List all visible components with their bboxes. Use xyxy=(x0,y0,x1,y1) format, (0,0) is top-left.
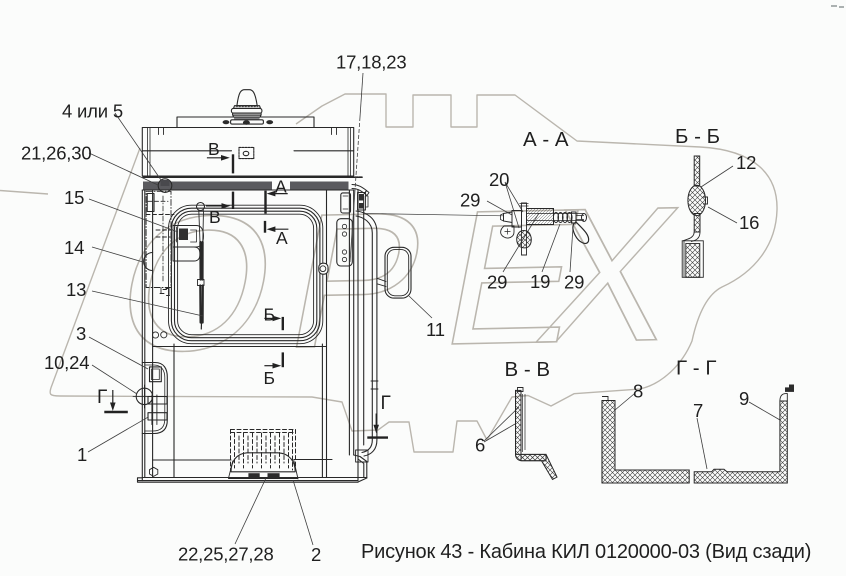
svg-text:19: 19 xyxy=(530,271,550,292)
svg-text:Г: Г xyxy=(381,393,391,414)
svg-text:4 или 5: 4 или 5 xyxy=(62,101,123,122)
svg-text:6: 6 xyxy=(475,435,485,456)
svg-text:Б: Б xyxy=(264,305,275,325)
svg-text:А - А: А - А xyxy=(523,128,569,151)
svg-text:ОРЕХ: ОРЕХ xyxy=(102,167,693,393)
svg-text:Г: Г xyxy=(97,387,107,408)
svg-text:2: 2 xyxy=(311,544,321,565)
svg-text:29: 29 xyxy=(564,272,584,293)
svg-text:10,24: 10,24 xyxy=(44,352,89,373)
svg-text:9: 9 xyxy=(739,388,749,409)
svg-text:22,25,27,28: 22,25,27,28 xyxy=(178,544,274,565)
svg-text:Рисунок 43 - Кабина КИЛ 012000: Рисунок 43 - Кабина КИЛ 0120000-03 (Вид … xyxy=(361,541,811,563)
svg-text:16: 16 xyxy=(739,212,759,233)
svg-text:14: 14 xyxy=(64,237,84,258)
svg-text:7: 7 xyxy=(693,400,703,421)
svg-text:Б - Б: Б - Б xyxy=(675,125,720,148)
svg-text:29: 29 xyxy=(487,272,507,293)
svg-text:29: 29 xyxy=(460,190,480,211)
svg-text:21,26,30: 21,26,30 xyxy=(21,143,91,164)
svg-text:А: А xyxy=(276,228,288,248)
svg-text:В: В xyxy=(209,207,221,227)
svg-text:1: 1 xyxy=(77,444,87,465)
svg-text:Г - Г: Г - Г xyxy=(676,357,716,380)
svg-text:17,18,23: 17,18,23 xyxy=(336,52,406,73)
svg-text:20: 20 xyxy=(489,169,509,190)
svg-text:11: 11 xyxy=(426,319,445,340)
svg-text:13: 13 xyxy=(66,279,86,300)
svg-text:15: 15 xyxy=(64,187,84,208)
svg-text:3: 3 xyxy=(76,323,86,344)
svg-text:Б: Б xyxy=(264,368,275,388)
svg-text:В - В: В - В xyxy=(505,358,551,381)
svg-text:8: 8 xyxy=(633,381,643,402)
svg-text:12: 12 xyxy=(736,152,756,173)
svg-text:А: А xyxy=(275,177,287,197)
svg-text:В: В xyxy=(208,139,220,159)
